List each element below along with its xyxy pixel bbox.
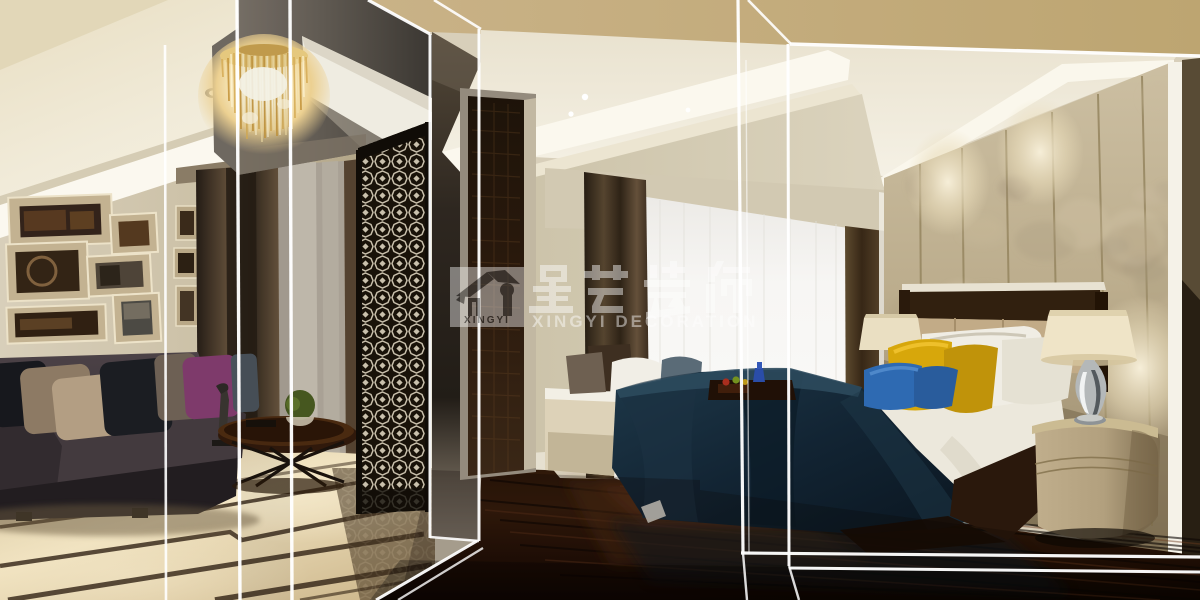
svg-text:XINGYI: XINGYI xyxy=(464,315,510,326)
svg-text:XINGYI DECORATION: XINGYI DECORATION xyxy=(532,312,758,331)
